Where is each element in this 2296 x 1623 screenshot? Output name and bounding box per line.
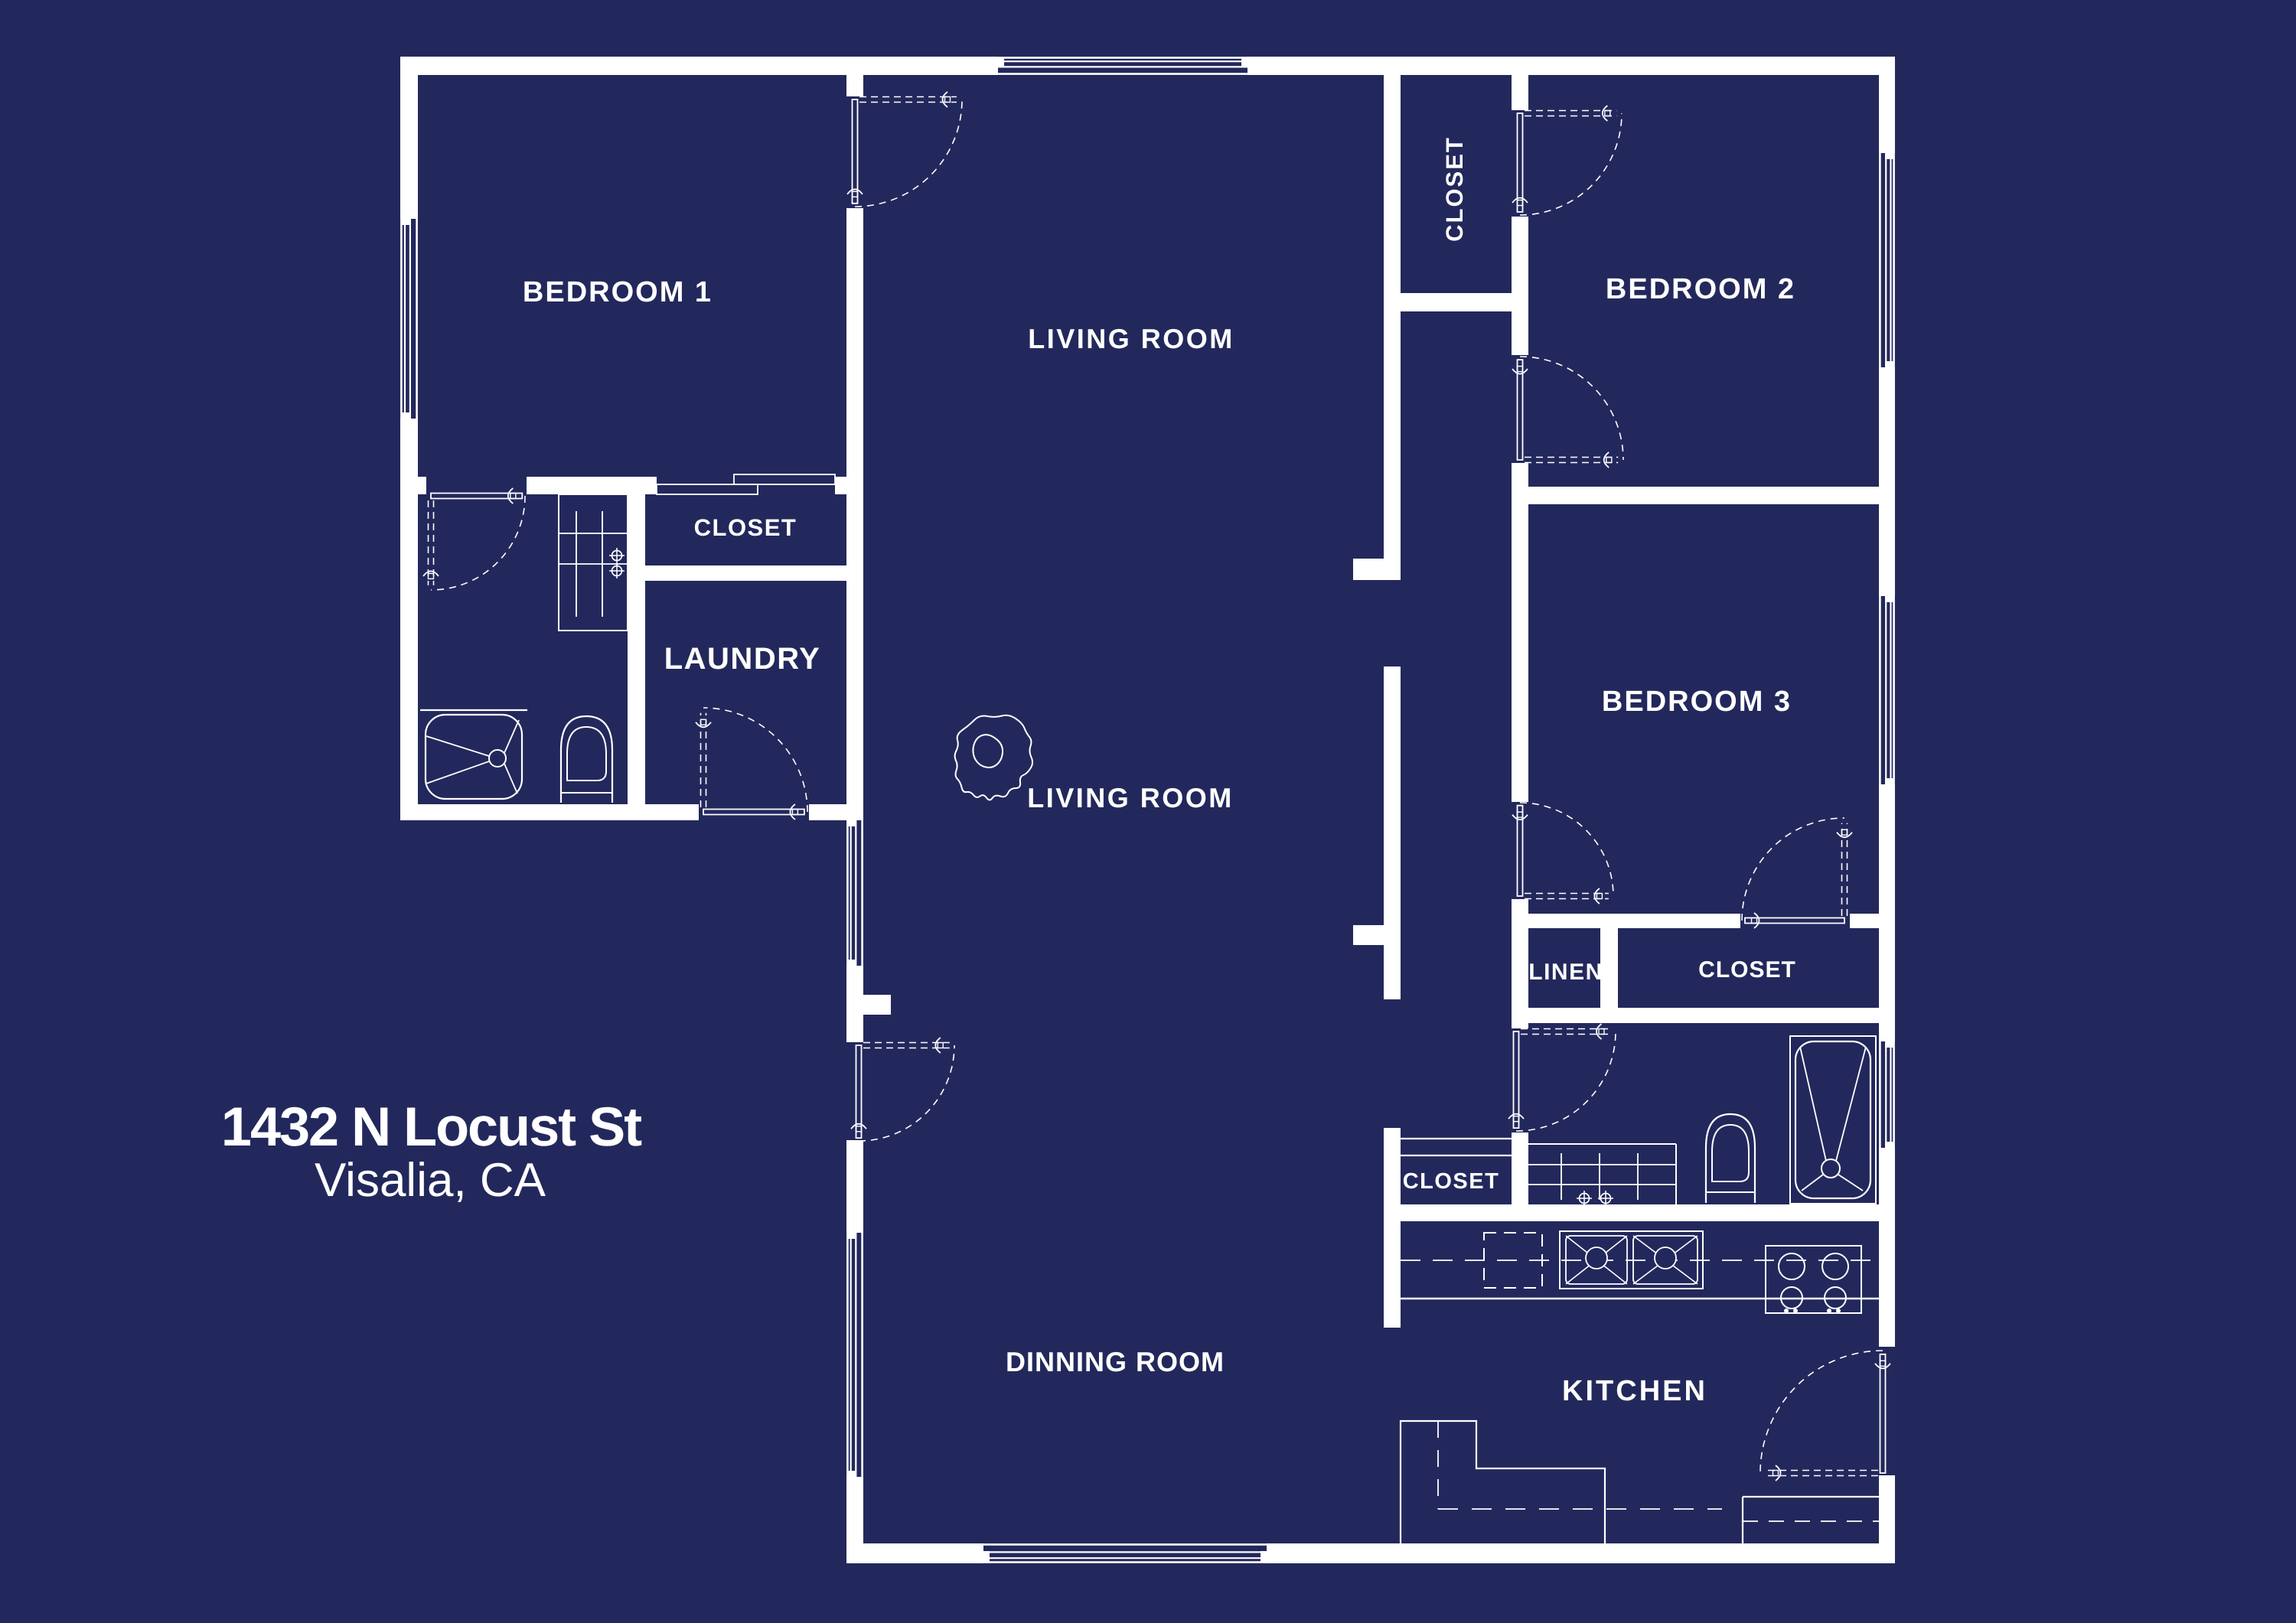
svg-text:BEDROOM 1: BEDROOM 1 <box>523 276 713 308</box>
svg-text:BEDROOM 3: BEDROOM 3 <box>1602 686 1792 718</box>
svg-text:LAUNDRY: LAUNDRY <box>664 642 821 676</box>
svg-text:CLOSET: CLOSET <box>1441 136 1468 242</box>
svg-text:DINNING ROOM: DINNING ROOM <box>1006 1346 1225 1377</box>
svg-text:CLOSET: CLOSET <box>1403 1169 1500 1194</box>
svg-text:CLOSET: CLOSET <box>1698 957 1796 983</box>
svg-text:Visalia, CA: Visalia, CA <box>315 1154 546 1207</box>
svg-text:LINEN: LINEN <box>1528 960 1603 985</box>
svg-text:BEDROOM 2: BEDROOM 2 <box>1606 273 1795 305</box>
svg-text:KITCHEN: KITCHEN <box>1562 1375 1707 1407</box>
svg-text:LIVING ROOM: LIVING ROOM <box>1027 782 1234 813</box>
svg-text:LIVING ROOM: LIVING ROOM <box>1028 323 1234 354</box>
svg-text:1432 N Locust St: 1432 N Locust St <box>221 1097 642 1158</box>
svg-text:CLOSET: CLOSET <box>694 514 797 541</box>
